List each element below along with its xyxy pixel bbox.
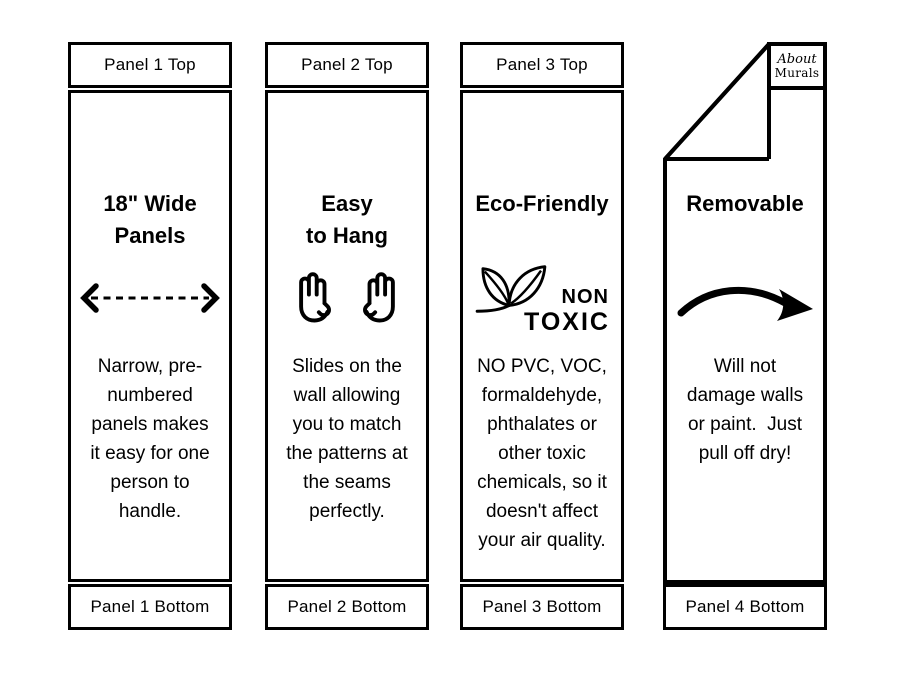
width-double-arrow-icon: [75, 280, 225, 316]
panel-2-body: Easy to Hang Slides on the wall allowing…: [265, 90, 429, 582]
two-hands-icon: [268, 254, 426, 342]
panel-3-description: NO PVC, VOC, formaldehyde, phthalates or…: [463, 352, 621, 555]
non-toxic-leaf-icon: NON TOXIC: [474, 259, 610, 337]
panel-3: Panel 3 Top Eco-Friendly NON T: [460, 42, 624, 630]
hand-icon: [289, 269, 334, 327]
panel-1-description: Narrow, pre- numbered panels makes it ea…: [71, 352, 229, 526]
panel-3-top-box: Panel 3 Top: [460, 42, 624, 88]
panel-4-title: Removable: [666, 188, 824, 254]
panel-4-bottom-label: Panel 4 Bottom: [685, 597, 804, 617]
brand-logo: About Murals: [771, 46, 823, 86]
panel-4: About Murals Removable Will not damage w…: [663, 42, 827, 630]
panel-1-top-box: Panel 1 Top: [68, 42, 232, 88]
panel-2-top-label: Panel 2 Top: [301, 55, 393, 75]
panel-2-top-box: Panel 2 Top: [265, 42, 429, 88]
panel-1-title: 18" Wide Panels: [71, 188, 229, 254]
panel-3-title: Eco-Friendly: [463, 188, 621, 254]
hand-icon-mirrored: [360, 269, 405, 327]
panel-4-bottom-box: Panel 4 Bottom: [663, 584, 827, 630]
panel-3-top-label: Panel 3 Top: [496, 55, 588, 75]
panel-3-body: Eco-Friendly NON TOXIC NO P: [460, 90, 624, 582]
panel-2-description: Slides on the wall allowing you to match…: [268, 352, 426, 526]
non-toxic-text-line1: NON: [562, 286, 609, 309]
panel-1-top-label: Panel 1 Top: [104, 55, 196, 75]
panel-1-body: 18" Wide Panels Narrow, pre- numbered pa…: [68, 90, 232, 582]
panel-4-description: Will not damage walls or paint. Just pul…: [666, 352, 824, 468]
panel-1-bottom-box: Panel 1 Bottom: [68, 584, 232, 630]
non-toxic-text-line2: TOXIC: [524, 308, 610, 337]
brand-logo-line1: About: [777, 53, 816, 67]
brand-logo-line2: Murals: [775, 67, 820, 80]
panel-2-bottom-box: Panel 2 Bottom: [265, 584, 429, 630]
panel-2-title: Easy to Hang: [268, 188, 426, 254]
panel-3-bottom-label: Panel 3 Bottom: [482, 597, 601, 617]
panel-1-bottom-label: Panel 1 Bottom: [90, 597, 209, 617]
curved-arrow-icon: [675, 267, 815, 329]
panel-2: Panel 2 Top Easy to Hang Slides on the w…: [265, 42, 429, 630]
panel-3-bottom-box: Panel 3 Bottom: [460, 584, 624, 630]
panel-2-bottom-label: Panel 2 Bottom: [287, 597, 406, 617]
wallpaper-panels-infographic: Panel 1 Top 18" Wide Panels Narrow, pre-…: [0, 0, 900, 675]
panel-1: Panel 1 Top 18" Wide Panels Narrow, pre-…: [68, 42, 232, 630]
